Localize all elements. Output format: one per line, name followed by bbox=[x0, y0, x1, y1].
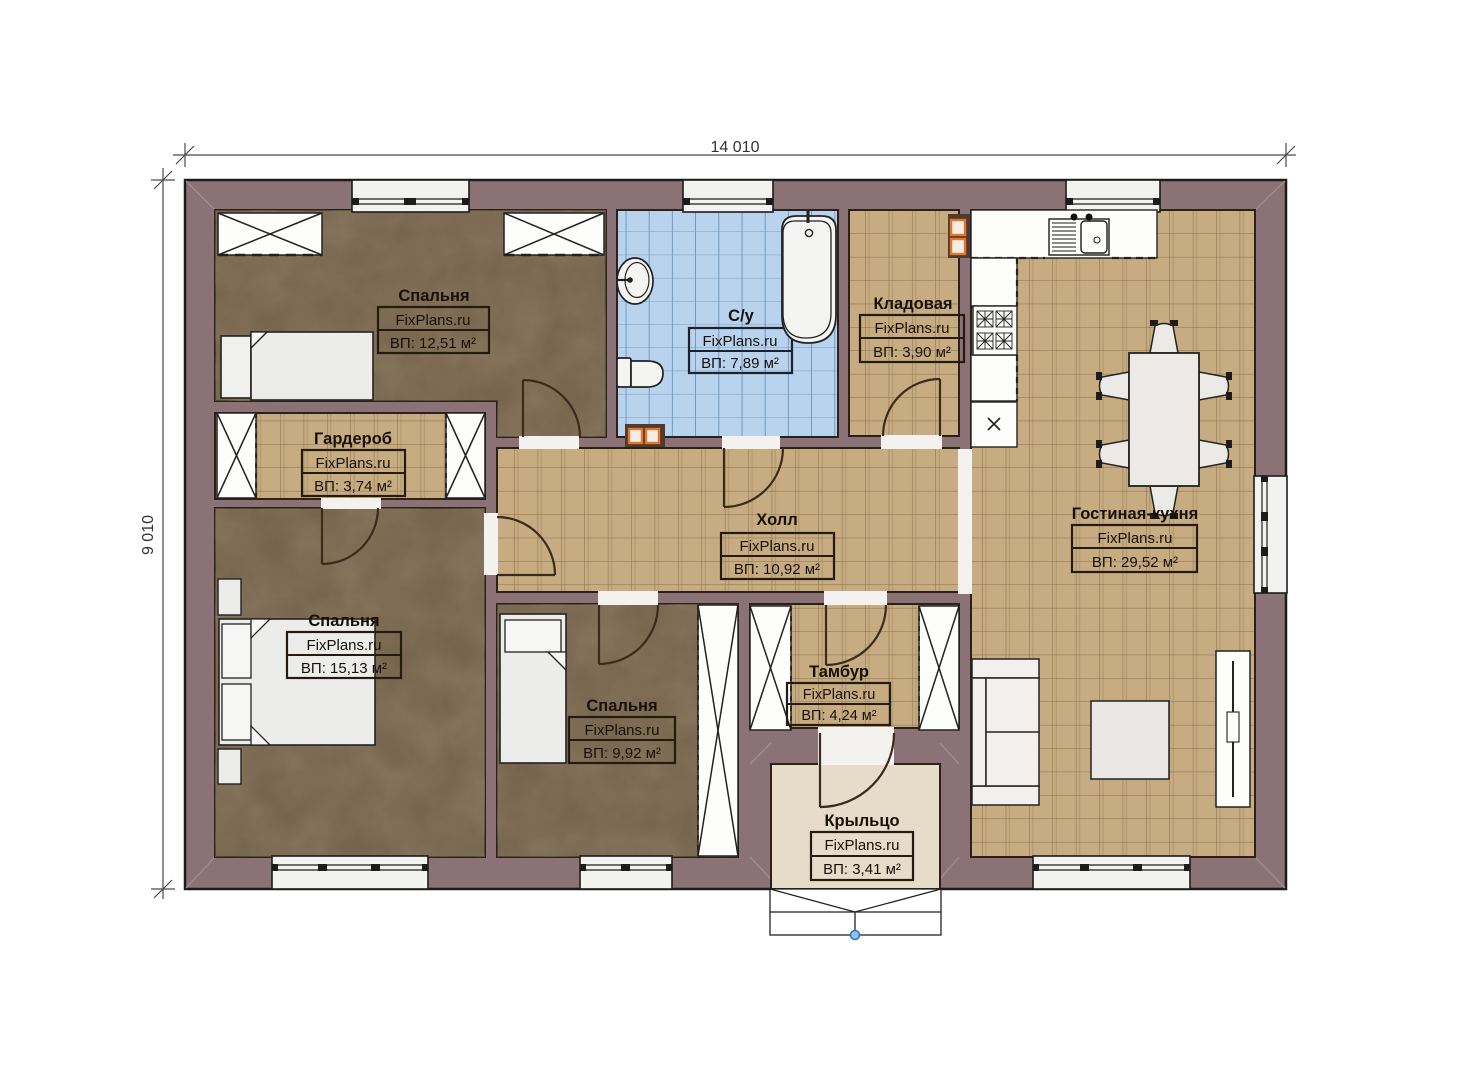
svg-text:FixPlans.ru: FixPlans.ru bbox=[584, 722, 659, 739]
svg-text:ВП: 3,41 м²: ВП: 3,41 м² bbox=[823, 861, 901, 878]
svg-text:Кладовая: Кладовая bbox=[873, 295, 952, 313]
svg-text:FixPlans.ru: FixPlans.ru bbox=[803, 687, 876, 703]
svg-text:FixPlans.ru: FixPlans.ru bbox=[702, 333, 777, 350]
svg-text:Тамбур: Тамбур bbox=[809, 663, 869, 681]
svg-text:FixPlans.ru: FixPlans.ru bbox=[739, 538, 814, 555]
svg-text:FixPlans.ru: FixPlans.ru bbox=[395, 312, 470, 329]
svg-text:Крыльцо: Крыльцо bbox=[824, 812, 899, 830]
svg-text:ВП: 29,52 м²: ВП: 29,52 м² bbox=[1092, 554, 1178, 571]
svg-text:ВП: 9,92 м²: ВП: 9,92 м² bbox=[583, 745, 661, 762]
svg-text:FixPlans.ru: FixPlans.ru bbox=[874, 320, 949, 337]
svg-text:FixPlans.ru: FixPlans.ru bbox=[315, 455, 390, 472]
svg-text:FixPlans.ru: FixPlans.ru bbox=[1097, 530, 1172, 547]
svg-text:ВП: 3,90 м²: ВП: 3,90 м² bbox=[873, 344, 951, 361]
svg-text:ВП: 12,51 м²: ВП: 12,51 м² bbox=[390, 335, 476, 352]
svg-text:9 010: 9 010 bbox=[140, 515, 157, 555]
svg-text:ВП: 15,13 м²: ВП: 15,13 м² bbox=[301, 660, 387, 677]
svg-text:Спальня: Спальня bbox=[586, 697, 657, 715]
svg-text:ВП: 4,24 м²: ВП: 4,24 м² bbox=[801, 708, 876, 724]
svg-text:FixPlans.ru: FixPlans.ru bbox=[306, 637, 381, 654]
svg-text:ВП: 10,92 м²: ВП: 10,92 м² bbox=[734, 561, 820, 578]
svg-text:ВП: 3,74 м²: ВП: 3,74 м² bbox=[314, 478, 392, 495]
svg-text:Холл: Холл bbox=[756, 511, 797, 529]
svg-text:Спальня: Спальня bbox=[398, 287, 469, 305]
svg-text:Гостиная-кухня: Гостиная-кухня bbox=[1072, 505, 1198, 523]
svg-text:FixPlans.ru: FixPlans.ru bbox=[824, 837, 899, 854]
svg-text:Спальня: Спальня bbox=[308, 612, 379, 630]
svg-text:14 010: 14 010 bbox=[711, 139, 760, 156]
svg-text:С/у: С/у bbox=[728, 307, 755, 325]
svg-text:ВП: 7,89 м²: ВП: 7,89 м² bbox=[701, 355, 779, 372]
svg-text:Гардероб: Гардероб bbox=[314, 430, 392, 448]
